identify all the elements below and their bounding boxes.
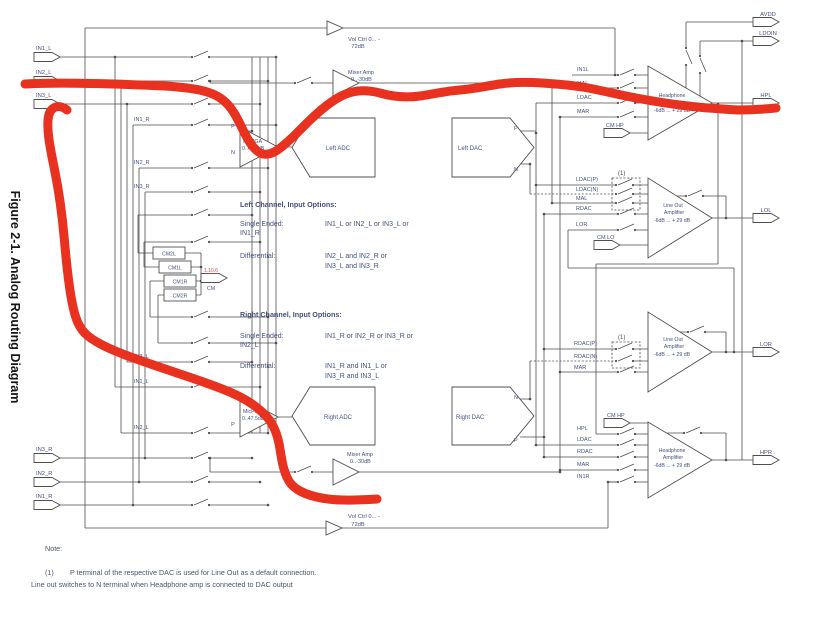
in1l-label: IN1_L xyxy=(36,46,52,52)
hpr-out-label: HPR xyxy=(760,450,772,456)
right-diff-value2: IN3_R and IN3_L xyxy=(325,373,379,380)
right-channel-options: Right Channel, Input Options: Single End… xyxy=(240,310,414,380)
wire-label-in1r-top: IN1_R xyxy=(134,117,150,123)
connector-in1_r: IN1_R xyxy=(34,494,60,510)
hpr-in-mar: MAR xyxy=(577,462,589,468)
hpl-in-ldac: LDAC xyxy=(577,95,592,101)
lor-in-rdacn: RDAC(N) xyxy=(574,354,597,360)
connector-cm: 1.10.6 CM xyxy=(201,268,227,292)
analog-routing-diagram: MicPGA 0..47.5dB MicPGA 0..47.5dB Left A… xyxy=(0,0,833,620)
note-line1: P terminal of the respective DAC is used… xyxy=(70,568,316,577)
hpr-in-hpl: HPL xyxy=(577,426,588,432)
left-adc-label: Left ADC xyxy=(326,146,351,152)
lineout-amp-left: Line Out Amplifier -6dB ... + 29 dB xyxy=(648,178,712,258)
connector-avdd: AVDD xyxy=(753,12,779,27)
lor-amp-l2: Amplifier xyxy=(664,344,684,350)
figure-caption: Figure 2-1. Analog Routing Diagram xyxy=(8,191,22,404)
note-block: Note: (1) P terminal of the respective D… xyxy=(31,544,316,589)
wire-label-in2r-top: IN2_R xyxy=(134,160,150,166)
lor-amp-l1: Line Out xyxy=(663,337,683,343)
cm-label: CM xyxy=(207,286,215,292)
connector-in2_r: IN2_R xyxy=(34,471,60,487)
pga-left-n: N xyxy=(231,150,235,156)
in3l-label: IN3_L xyxy=(36,93,52,99)
lol-in-rdac: RDAC xyxy=(576,206,592,212)
note-line2: Line out switches to N terminal when Hea… xyxy=(31,580,293,589)
lol-amp-l1: Line Out xyxy=(663,203,683,209)
wire-label-in3r-top: IN3_R xyxy=(134,184,150,190)
lor-in-mar: MAR xyxy=(574,365,586,371)
lineout-amp-right: Line Out Amplifier -6dB ... + 29 dB xyxy=(648,312,712,392)
wire-label-in1l-bot: IN1_L xyxy=(134,379,149,385)
cm-box-cm1l: CM1L xyxy=(159,261,191,273)
lor-out-label: LOR xyxy=(760,342,772,348)
connector-lor: LOR xyxy=(753,342,779,357)
vol-ctrl-top-2: 72dB xyxy=(351,44,365,50)
right-se-label: Single Ended: xyxy=(240,333,284,340)
lor-in-rdacp: RDAC(P) xyxy=(574,341,597,347)
buffer-bottom xyxy=(326,521,342,535)
right-diff-label: Differential: xyxy=(240,363,275,370)
cmlo-label: CM LO xyxy=(597,235,615,241)
left-diff-value2: IN3_L and IN3_R xyxy=(325,263,379,270)
hpr-in-ldac: LDAC xyxy=(577,437,592,443)
connector-cmlo: CM LO xyxy=(594,235,620,250)
note-ref-2: (1) xyxy=(618,335,625,341)
connector-hpr: HPR xyxy=(753,450,779,465)
ldoin-label: LDOIN xyxy=(759,31,777,37)
cm-box-cm2l: CM2L xyxy=(153,247,185,259)
hpl-out-label: HPL xyxy=(760,93,772,99)
note-ref: (1) xyxy=(45,568,54,577)
cm-box-cm1r: CM1R xyxy=(164,275,196,287)
lol-in-mal: MAL xyxy=(576,196,587,202)
in3r-label: IN3_R xyxy=(36,447,52,453)
lol-out-label: LOL xyxy=(761,208,773,214)
vol-ctrl-bot-1: Vol Ctrl 0... - xyxy=(348,514,380,520)
pga-right-p: P xyxy=(231,422,235,428)
pga-left-p: P xyxy=(231,124,235,130)
right-se-value2: IN2_L xyxy=(240,342,259,349)
cm2l-label: CM2L xyxy=(162,252,176,258)
cm2r-label: CM2R xyxy=(173,294,188,300)
note-title: Note: xyxy=(45,544,62,553)
right-dac-block: Right DAC N P xyxy=(452,387,534,445)
lor-amp-gain: -6dB ... + 29 dB xyxy=(654,352,691,358)
in1r-label: IN1_R xyxy=(36,494,52,500)
connector-ldoin: LDOIN xyxy=(753,31,779,46)
right-dac-label: Right DAC xyxy=(456,415,485,421)
wire-label-in2l-bot: IN2_L xyxy=(134,425,149,431)
lol-in-lor: LOR xyxy=(576,222,587,228)
lol-amp-l2: Amplifier xyxy=(664,210,684,216)
left-dac-block: Left DAC P N xyxy=(452,118,534,177)
lol-amp-gain: -6dB ... + 29 dB xyxy=(654,218,691,224)
right-adc-block: Right ADC xyxy=(292,387,375,445)
connector-in3_r: IN3_R xyxy=(34,447,60,463)
right-dac-n: N xyxy=(514,395,518,401)
left-diff-label: Differential: xyxy=(240,253,275,260)
right-diff-value1: IN1_R and IN1_L or xyxy=(325,363,388,370)
mixer-bot-label: Mixer Amp xyxy=(347,452,373,458)
mixer-top-gain: 0..-30dB xyxy=(351,77,372,83)
hpl-in-in1l: IN1L xyxy=(577,67,589,73)
left-se-value1: IN1_L or IN2_L or IN3_L or xyxy=(325,221,409,228)
hpr-amp-l1: Headphone xyxy=(659,448,686,454)
right-adc-label: Right ADC xyxy=(324,415,353,421)
right-dac-p: P xyxy=(514,438,518,444)
lineout-default-switch-box-right: (1) xyxy=(612,335,640,368)
cm1l-label: CM1L xyxy=(168,266,182,272)
left-dac-label: Left DAC xyxy=(458,146,483,152)
hpr-amp-gain: -6dB ... + 29 dB xyxy=(654,463,691,469)
right-options-title: Right Channel, Input Options: xyxy=(240,310,342,319)
amp-input-labels: IN1L MAL LDAC MAR LDAC(P) LDAC(N) MAL RD… xyxy=(574,67,598,480)
connector-cmhp-top: CM HP xyxy=(604,123,630,138)
mixer-bot-gain: 0..-30dB xyxy=(350,459,371,465)
hpr-in-rdac: RDAC xyxy=(577,449,593,455)
vol-ctrl-bot-2: 72dB xyxy=(351,522,365,528)
lol-in-ldacn: LDAC(N) xyxy=(576,187,598,193)
cm-box-cm2r: CM2R xyxy=(164,289,196,301)
cmhp-top-label: CM HP xyxy=(606,123,624,129)
connector-lol: LOL xyxy=(753,208,779,223)
cm1r-label: CM1R xyxy=(173,280,188,286)
buffer-top xyxy=(327,21,343,35)
left-dac-p: P xyxy=(514,126,518,132)
connector-cmhp-bottom: CM HP xyxy=(604,413,630,428)
pga-terminal-labels: P N N P xyxy=(231,124,235,428)
note-ref-1: (1) xyxy=(618,171,625,177)
vol-ctrl-top-1: Vol Ctrl 0... - xyxy=(348,37,380,43)
mixer-top-label: Mixer Amp xyxy=(348,70,374,76)
in2r-label: IN2_R xyxy=(36,471,52,477)
left-dac-n: N xyxy=(514,167,518,173)
left-channel-options: Left Channel, Input Options: Single Ende… xyxy=(240,200,409,270)
hpr-amp-l2: Amplifier xyxy=(663,455,683,461)
left-se-value2: IN1_R xyxy=(240,230,260,237)
right-se-value1: IN1_R or IN2_R or IN3_R or xyxy=(325,333,414,340)
cmhp-bot-label: CM HP xyxy=(607,413,625,419)
avdd-label: AVDD xyxy=(760,12,776,18)
left-diff-value1: IN2_L and IN2_R or xyxy=(325,253,388,260)
connector-in1_l: IN1_L xyxy=(34,46,60,62)
left-se-label: Single Ended: xyxy=(240,221,284,228)
left-options-title: Left Channel, Input Options: xyxy=(240,200,337,209)
mixer-amp-bottom: Mixer Amp 0..-30dB xyxy=(333,452,373,485)
analog-routing-figure: MicPGA 0..47.5dB MicPGA 0..47.5dB Left A… xyxy=(0,0,833,620)
cross-reference-link[interactable]: 1.10.6 xyxy=(204,268,218,274)
lol-in-ldacp: LDAC(P) xyxy=(576,177,598,183)
hpl-in-mar: MAR xyxy=(577,109,589,115)
in2l-label: IN2_L xyxy=(36,70,52,76)
wire-labels: IN1_R IN2_R IN3_R IN3_L IN1_L IN2_L xyxy=(134,117,150,431)
hpr-in-in1r: IN1R xyxy=(577,474,590,480)
